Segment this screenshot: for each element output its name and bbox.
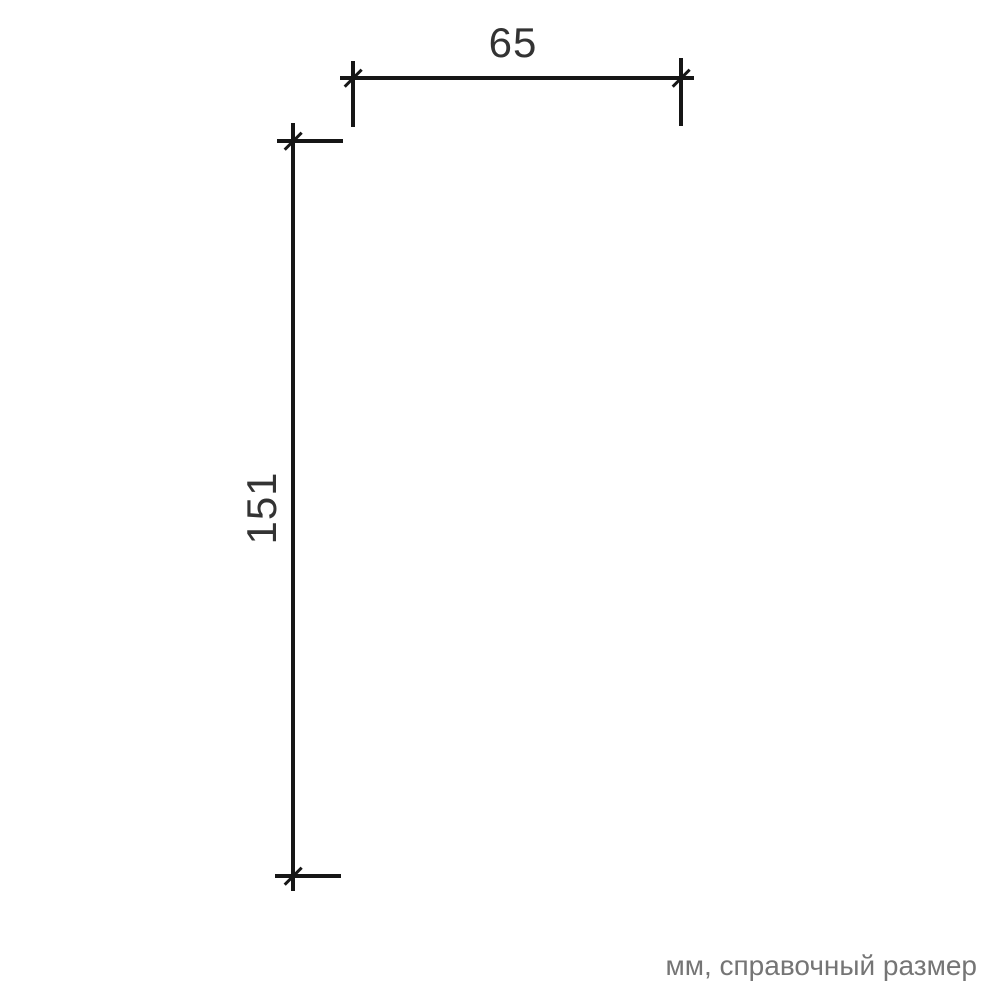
horizontal-dimension-line — [340, 76, 694, 80]
units-reference-note: мм, справочный размер — [665, 952, 977, 980]
vertical-dim-top-extension-line — [277, 139, 343, 143]
dimension-drawing: 65 151 мм, справочный размер — [0, 0, 1000, 1000]
horizontal-dim-left-extension-line — [351, 61, 355, 127]
horizontal-dimension-value: 65 — [489, 22, 538, 64]
horizontal-dim-right-extension-line — [679, 58, 683, 126]
vertical-dim-bottom-extension-line — [275, 874, 341, 878]
vertical-dimension-line — [291, 123, 295, 891]
vertical-dimension-value: 151 — [241, 471, 283, 544]
